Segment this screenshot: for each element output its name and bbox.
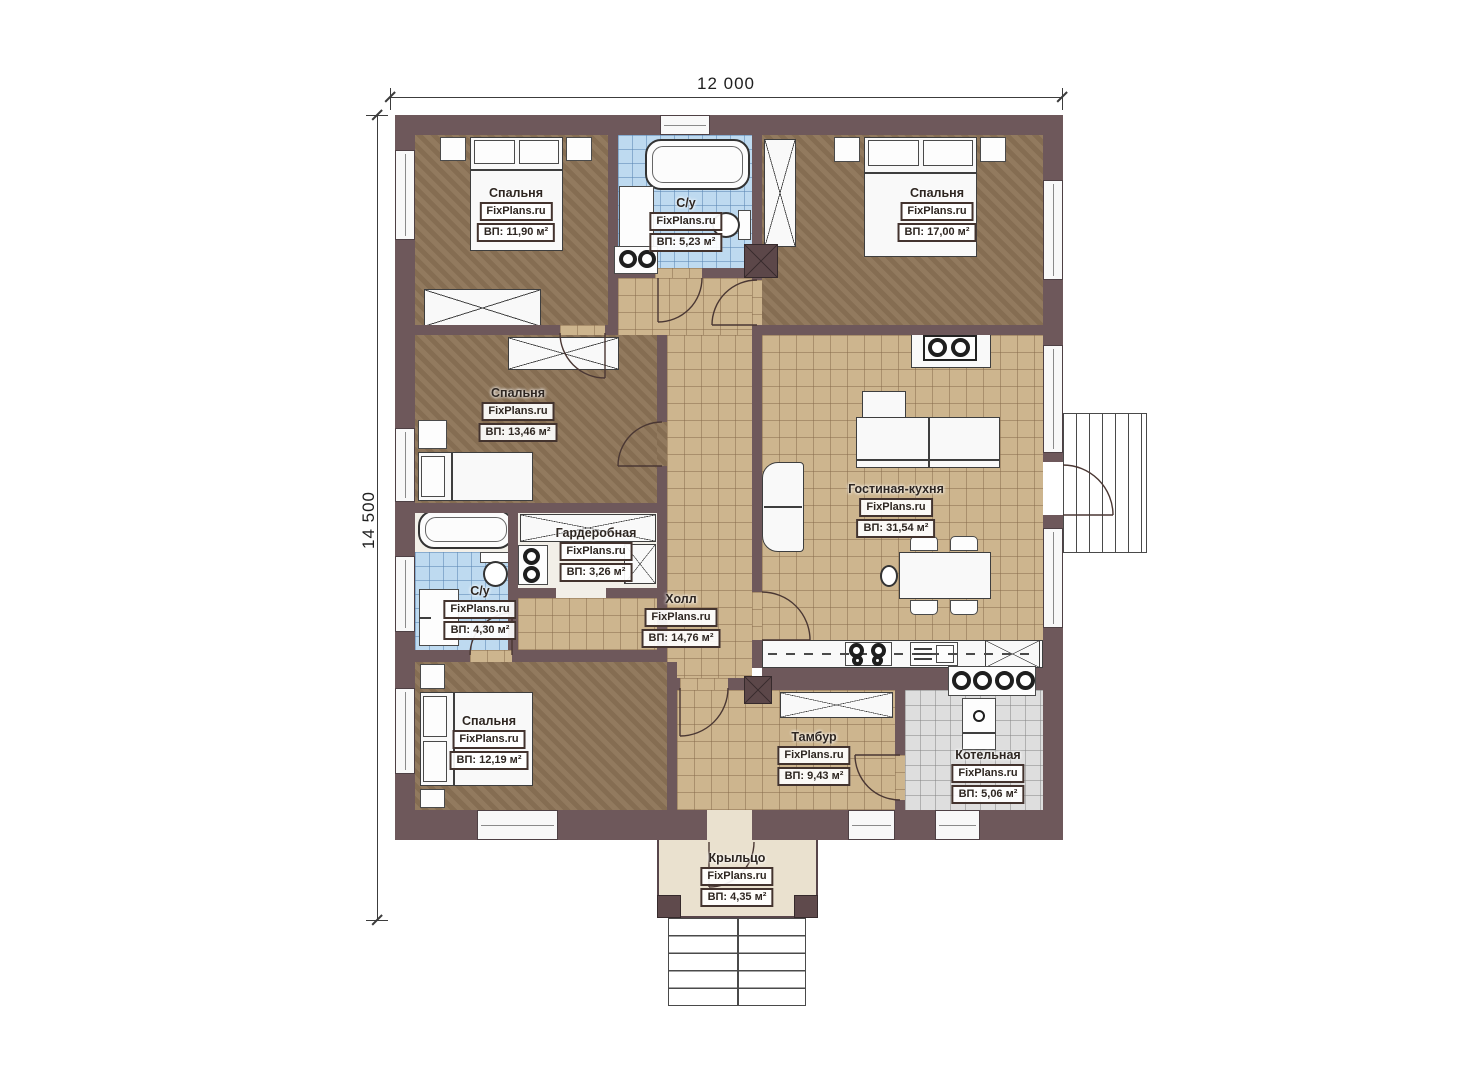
washer-drum — [638, 250, 656, 268]
room-area: ВП: 4,30 м² — [444, 621, 517, 640]
window — [395, 688, 415, 774]
wardrobe-cabinet — [424, 289, 541, 327]
room-area: ВП: 31,54 м² — [857, 519, 936, 538]
pillow — [474, 140, 515, 164]
burner — [928, 338, 947, 357]
room-label-bedroom-bottom-left: Спальня FixPlans.ruВП: 12,19 м² — [450, 714, 529, 770]
nightstand — [440, 137, 466, 161]
chimney-block — [744, 676, 772, 704]
doorway-wardrobe — [556, 588, 606, 598]
room-label-bedroom-top-right: Спальня FixPlans.ruВП: 17,00 м² — [898, 186, 977, 242]
wardrobe-cabinet — [780, 692, 893, 718]
nightstand — [834, 137, 860, 162]
room-area: ВП: 3,26 м² — [560, 563, 633, 582]
room-name: Спальня — [477, 186, 555, 200]
room-name: Крыльцо — [700, 851, 773, 865]
room-name: С/у — [649, 196, 722, 210]
door-opening — [680, 678, 728, 690]
manifold-dial — [995, 671, 1014, 690]
room-name: С/у — [443, 584, 516, 598]
room-label-living-kitchen: Гостиная-кухня FixPlans.ruВП: 31,54 м² — [848, 482, 944, 538]
watermark: FixPlans.ru — [649, 212, 722, 231]
door-opening-front — [707, 810, 752, 840]
watermark: FixPlans.ru — [481, 402, 554, 421]
nightstand — [420, 789, 445, 808]
porch-post — [657, 895, 681, 918]
room-name: Гостиная-кухня — [848, 482, 944, 496]
room-label-bedroom-mid-left: Спальня FixPlans.ruВП: 13,46 м² — [479, 386, 558, 442]
chair — [910, 600, 938, 615]
watermark: FixPlans.ru — [452, 730, 525, 749]
room-name: Котельная — [951, 748, 1024, 762]
room-label-hall: Холл FixPlans.ruВП: 14,76 м² — [642, 592, 721, 648]
dimension-extension — [366, 920, 388, 921]
sink-faucet — [419, 617, 431, 619]
window — [1043, 528, 1063, 628]
side-entrance-stairs — [1063, 413, 1147, 553]
dining-table — [899, 552, 991, 599]
dimension-line-top — [390, 97, 1062, 98]
room-area: ВП: 12,19 м² — [450, 751, 529, 770]
door-opening — [470, 650, 512, 662]
room-label-boiler: Котельная FixPlans.ruВП: 5,06 м² — [951, 748, 1024, 804]
pillow — [423, 741, 447, 782]
drainer-line — [914, 648, 932, 650]
room-area: ВП: 14,76 м² — [642, 629, 721, 648]
room-name: Холл — [642, 592, 721, 606]
dimension-width-label: 12 000 — [697, 74, 755, 94]
nightstand — [566, 137, 592, 161]
pillow — [519, 140, 559, 164]
watermark: FixPlans.ru — [644, 608, 717, 627]
window — [1043, 345, 1063, 453]
room-area: ВП: 4,35 м² — [701, 888, 774, 907]
burner — [872, 655, 883, 666]
manifold-dial — [973, 671, 992, 690]
exterior-wall-top — [395, 115, 1063, 135]
room-label-porch: Крыльцо FixPlans.ruВП: 4,35 м² — [700, 851, 773, 907]
room-hall-floor-top — [618, 278, 752, 335]
porch-post — [794, 895, 818, 918]
bed-fold-line — [471, 169, 562, 171]
door-opening-side — [1043, 462, 1063, 515]
watermark: FixPlans.ru — [559, 542, 632, 561]
watermark: FixPlans.ru — [951, 764, 1024, 783]
manifold-dial — [1016, 671, 1035, 690]
nightstand — [420, 664, 445, 689]
watermark: FixPlans.ru — [443, 600, 516, 619]
window — [848, 810, 895, 840]
dimension-extension — [366, 115, 388, 116]
nightstand — [418, 420, 447, 449]
door-opening — [752, 280, 762, 325]
bed-fold-line — [865, 172, 976, 174]
armchair-seam — [764, 506, 802, 508]
window — [477, 810, 558, 840]
window — [395, 556, 415, 632]
wall — [415, 650, 667, 662]
washer-drum — [619, 250, 637, 268]
watermark: FixPlans.ru — [900, 202, 973, 221]
bathtub — [645, 139, 750, 190]
door-opening — [895, 755, 905, 800]
pillow — [868, 140, 919, 166]
counter-dashed-line — [768, 653, 1036, 655]
window — [395, 150, 415, 240]
window — [660, 115, 710, 135]
pillow — [423, 696, 447, 737]
room-label-bedroom-top-left: Спальня FixPlans.ruВП: 11,90 м² — [477, 186, 555, 242]
chair — [950, 536, 978, 551]
chair — [950, 600, 978, 615]
wall — [415, 503, 667, 513]
bathtub — [418, 510, 514, 549]
watermark: FixPlans.ru — [859, 498, 932, 517]
room-name: Спальня — [898, 186, 977, 200]
door-opening — [752, 592, 762, 640]
room-name: Спальня — [479, 386, 558, 400]
pillow — [421, 456, 445, 497]
room-label-wardrobe: Гардеробная FixPlans.ruВП: 3,26 м² — [556, 526, 637, 582]
watermark: FixPlans.ru — [777, 746, 850, 765]
room-area: ВП: 5,23 м² — [650, 233, 723, 252]
drainer-line — [914, 658, 932, 660]
window — [935, 810, 980, 840]
room-area: ВП: 5,06 м² — [952, 785, 1025, 804]
room-label-vestibule: Тамбур FixPlans.ruВП: 9,43 м² — [777, 730, 850, 786]
nightstand — [980, 137, 1006, 162]
bed-fold-line — [451, 453, 453, 500]
dimension-height-label: 14 500 — [359, 491, 379, 549]
window — [1043, 180, 1063, 280]
dimension-extension — [390, 88, 391, 110]
room-label-bathroom-bottom: С/у FixPlans.ruВП: 4,30 м² — [443, 584, 516, 640]
room-label-bathroom-top: С/у FixPlans.ruВП: 5,23 м² — [649, 196, 722, 252]
room-area: ВП: 9,43 м² — [778, 767, 851, 786]
room-name: Гардеробная — [556, 526, 637, 540]
wardrobe-cabinet — [764, 139, 796, 247]
room-area: ВП: 11,90 м² — [477, 223, 555, 242]
door-opening — [655, 268, 702, 278]
boiler-gauge — [973, 710, 985, 722]
dimension-extension — [1062, 88, 1063, 110]
room-name: Спальня — [450, 714, 529, 728]
wall — [608, 135, 618, 335]
door-opening — [560, 325, 605, 335]
window — [395, 428, 415, 502]
floor-plan-canvas: Спальня FixPlans.ruВП: 11,90 м² С/у FixP… — [0, 0, 1473, 1080]
room-area: ВП: 13,46 м² — [479, 423, 558, 442]
washer-drum — [523, 566, 540, 583]
watermark: FixPlans.ru — [700, 867, 773, 886]
room-area: ВП: 17,00 м² — [898, 223, 977, 242]
porch-steps — [668, 918, 806, 1006]
wardrobe-cabinet — [508, 337, 619, 370]
door-opening — [657, 422, 667, 466]
room-name: Тамбур — [777, 730, 850, 744]
burner — [951, 338, 970, 357]
wall — [762, 325, 1043, 335]
stool — [880, 565, 898, 587]
sofa-back-line — [857, 459, 999, 461]
chair — [910, 536, 938, 551]
burner — [852, 655, 863, 666]
boiler-line — [963, 732, 995, 734]
chimney-block — [744, 244, 778, 278]
manifold-dial — [952, 671, 971, 690]
pillow — [923, 140, 973, 166]
watermark: FixPlans.ru — [479, 202, 552, 221]
boiler — [962, 698, 996, 750]
washer-drum — [523, 548, 540, 565]
drainer-line — [914, 653, 932, 655]
